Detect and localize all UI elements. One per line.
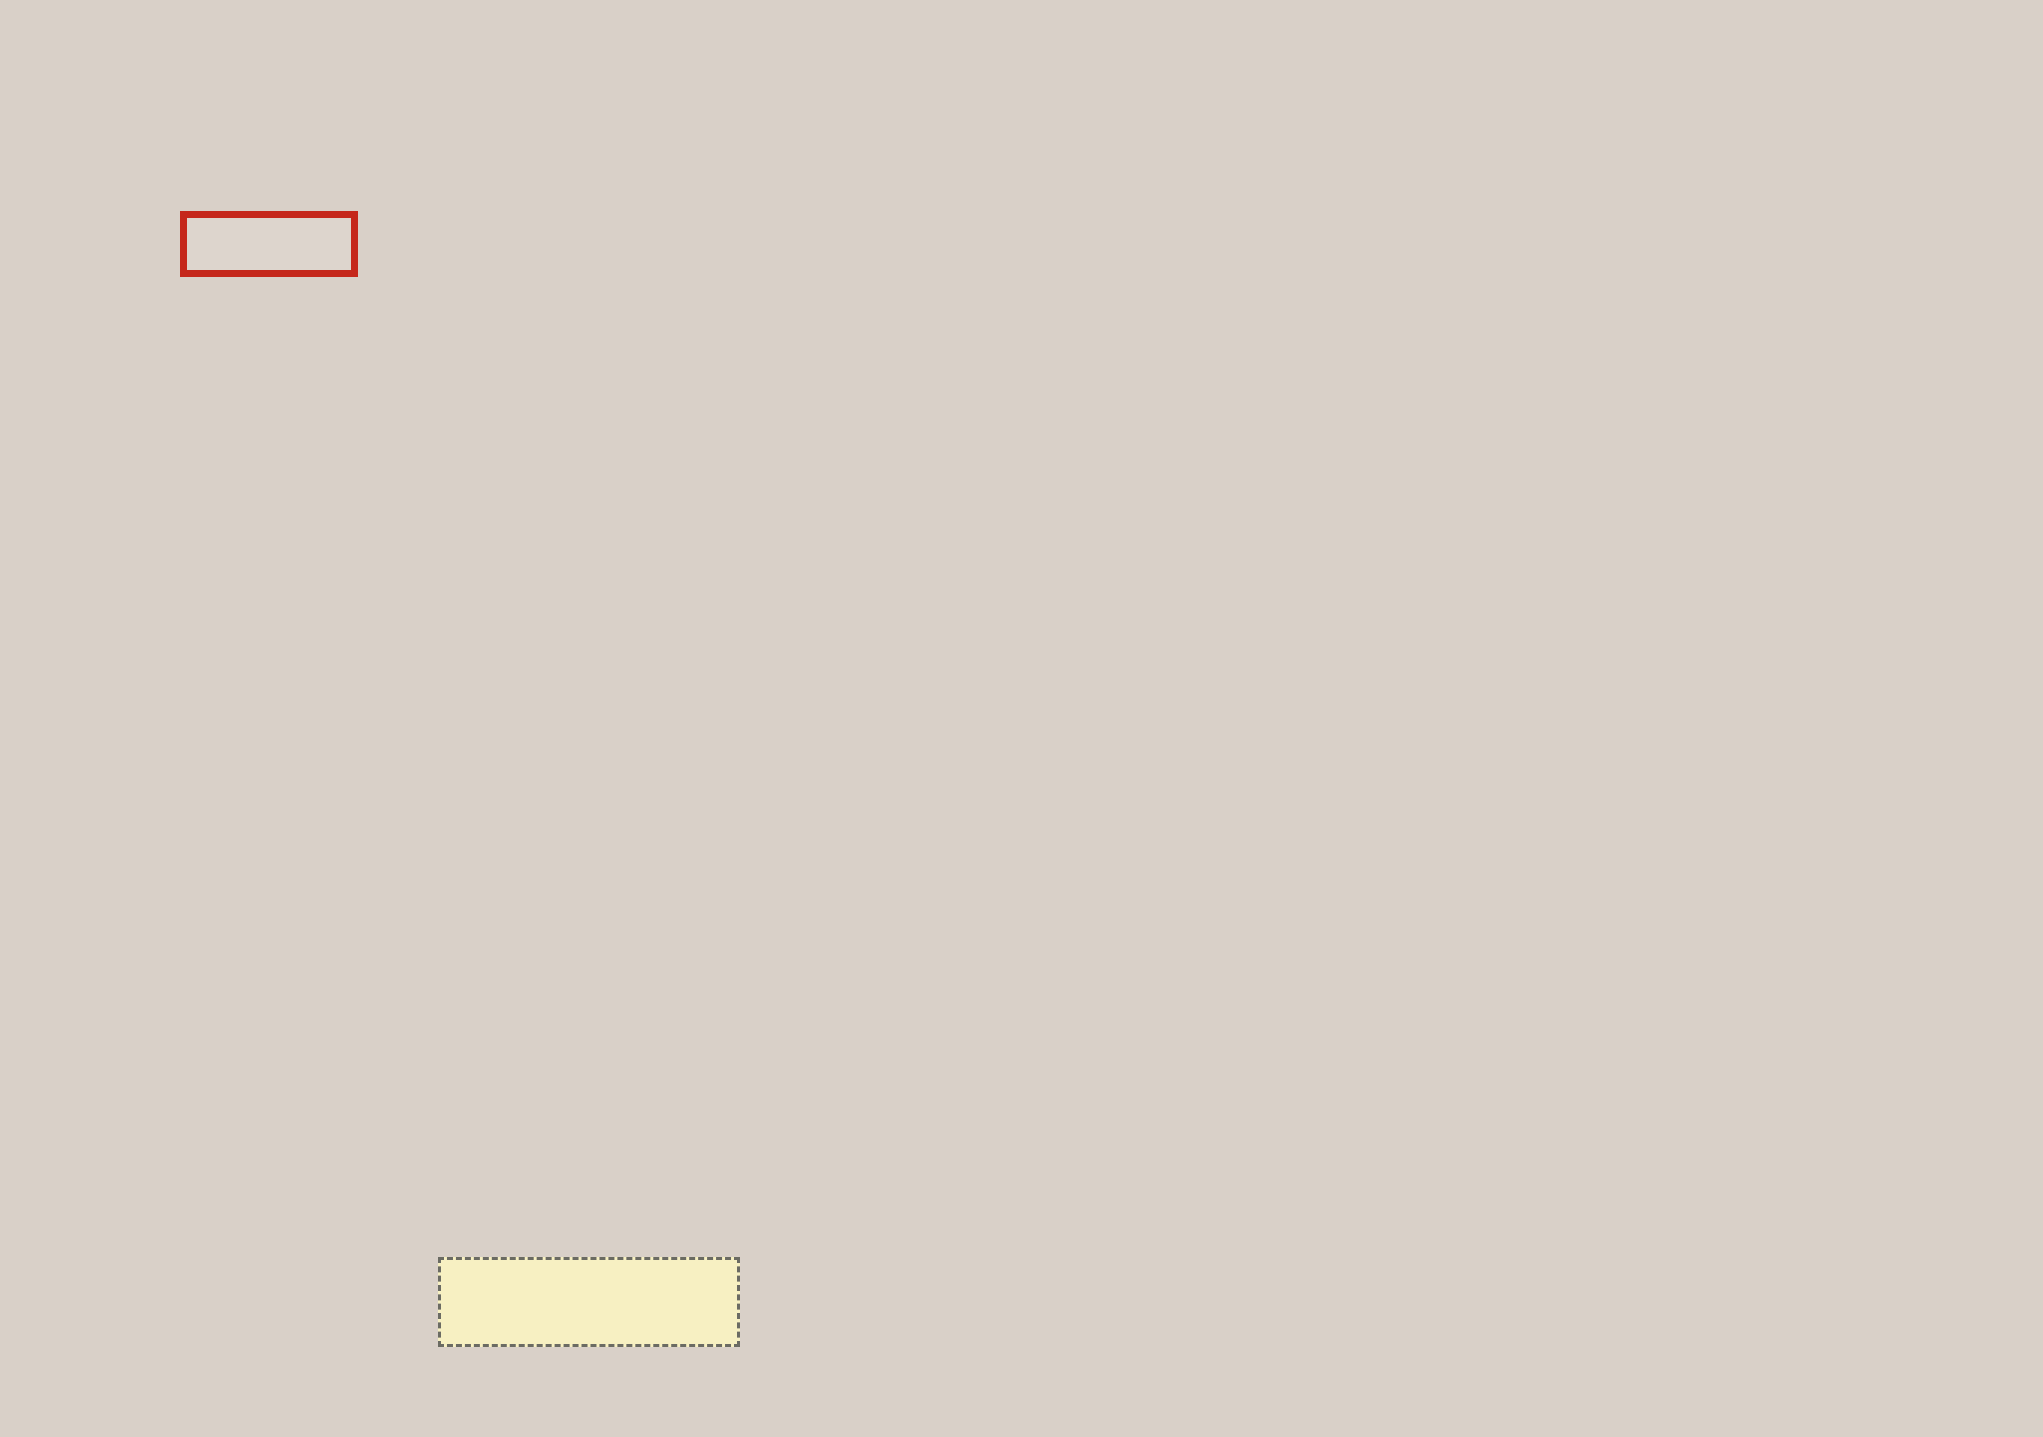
walking-time-legend — [438, 1257, 740, 1347]
campus-map — [0, 0, 2043, 1437]
event-venue-callout — [180, 211, 358, 277]
